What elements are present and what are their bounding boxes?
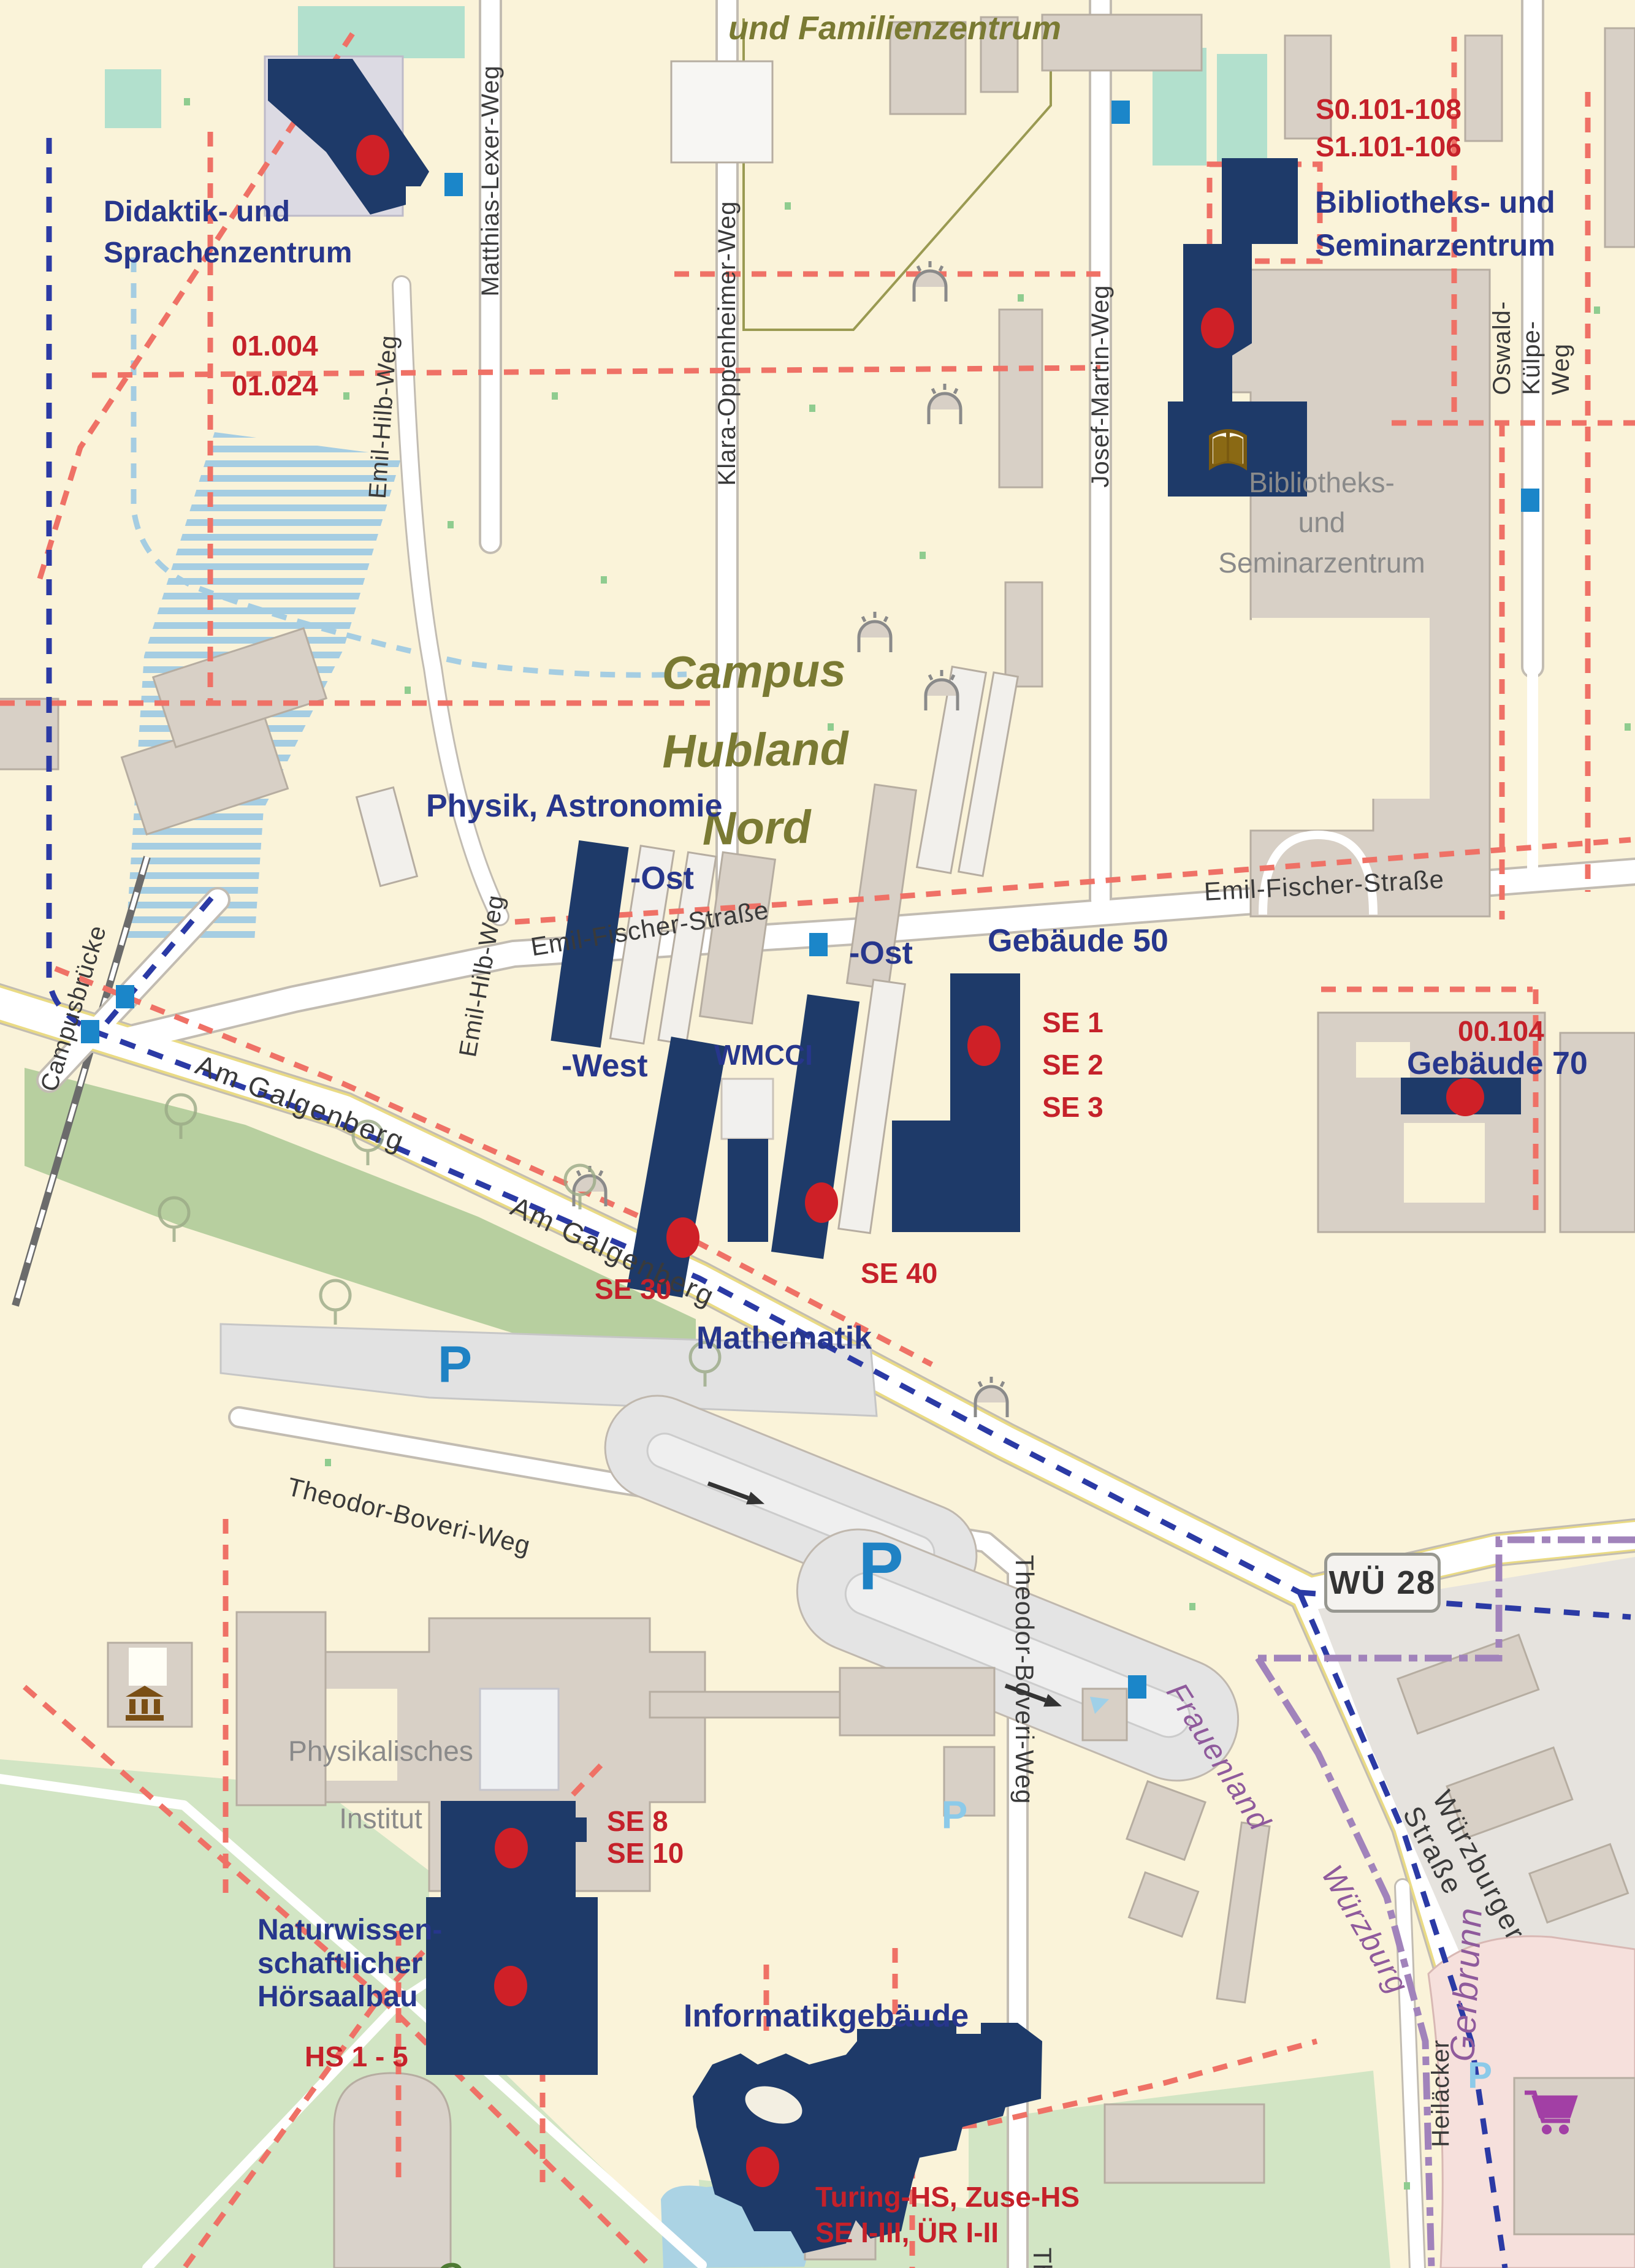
entrance-dot-hoersaalbau[interactable]	[494, 1966, 527, 2006]
stop-marker[interactable]	[444, 173, 463, 196]
entrance-dot-gebaeude50[interactable]	[967, 1026, 1000, 1066]
entrance-dot-physik-se[interactable]	[495, 1828, 528, 1868]
stop-marker[interactable]	[116, 985, 134, 1008]
building-bibliothek-north[interactable]	[1222, 158, 1298, 244]
entrance-dot-didaktik[interactable]	[356, 135, 389, 175]
campus-map: und Familienzentrum Campus Hubland Nord …	[0, 0, 1635, 2268]
stop-marker[interactable]	[809, 933, 828, 956]
stop-marker[interactable]	[1111, 101, 1130, 124]
stop-marker[interactable]	[81, 1020, 99, 1043]
building-wmcci[interactable]	[728, 1139, 768, 1242]
stop-marker[interactable]	[1521, 489, 1539, 512]
entrance-dot-bibliothek[interactable]	[1201, 308, 1234, 348]
entrance-dot-informatik[interactable]	[746, 2147, 779, 2187]
road-sign-wue28: WÜ 28	[1324, 1553, 1441, 1613]
entrance-dot-gebaeude70[interactable]	[1446, 1078, 1484, 1116]
book-icon	[1211, 431, 1245, 467]
basemap	[0, 0, 1635, 2268]
entrance-dot-se40[interactable]	[805, 1182, 838, 1223]
entrance-dot-se30[interactable]	[666, 1217, 699, 1258]
stop-marker[interactable]	[1128, 1675, 1146, 1699]
